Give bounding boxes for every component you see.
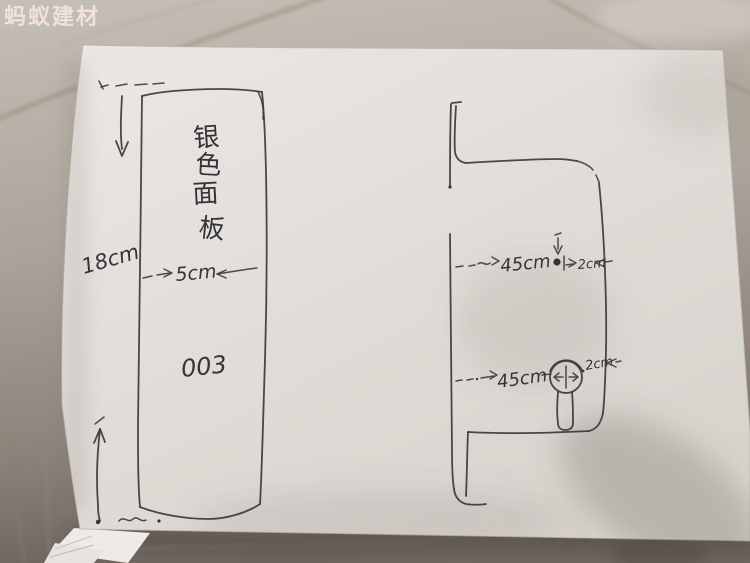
left-arrow-tail [616,361,621,362]
upper-offset-text: 2cm [577,256,606,273]
paper-shade [190,490,570,550]
scene: 银 色 面 板 5cm 18cm 003 [0,0,750,563]
dash-mark [456,266,463,267]
left-arrow-tail [605,261,612,262]
watermark-text: 蚂蚁建材 [4,5,100,30]
down-arrow-shaft [121,96,122,149]
photo-of-sketch: 银 色 面 板 5cm 18cm 003 [0,0,750,563]
paper-left-curl-shade [62,60,88,510]
ink-dot [582,370,585,373]
label-char-4: 板 [197,213,226,246]
paper-stack [44,45,750,563]
dash-mark [469,265,475,266]
dash-mark [467,379,473,380]
width-dim-text: 5cm [175,260,218,285]
ink-dot [96,520,100,524]
ink-dot [448,185,451,188]
dash-mark [456,380,462,381]
dash-mark [153,83,164,84]
flange-top-tick [452,102,461,103]
dash-mark [135,84,147,85]
label-char-2: 色 [195,150,223,181]
screw-hole-dot [553,258,560,265]
faceplate-edge-upper [450,104,451,187]
ink-dot [476,378,478,380]
ink-dot [157,519,160,522]
label-char-3: 面 [192,179,220,210]
model-number-text: 003 [180,350,228,383]
